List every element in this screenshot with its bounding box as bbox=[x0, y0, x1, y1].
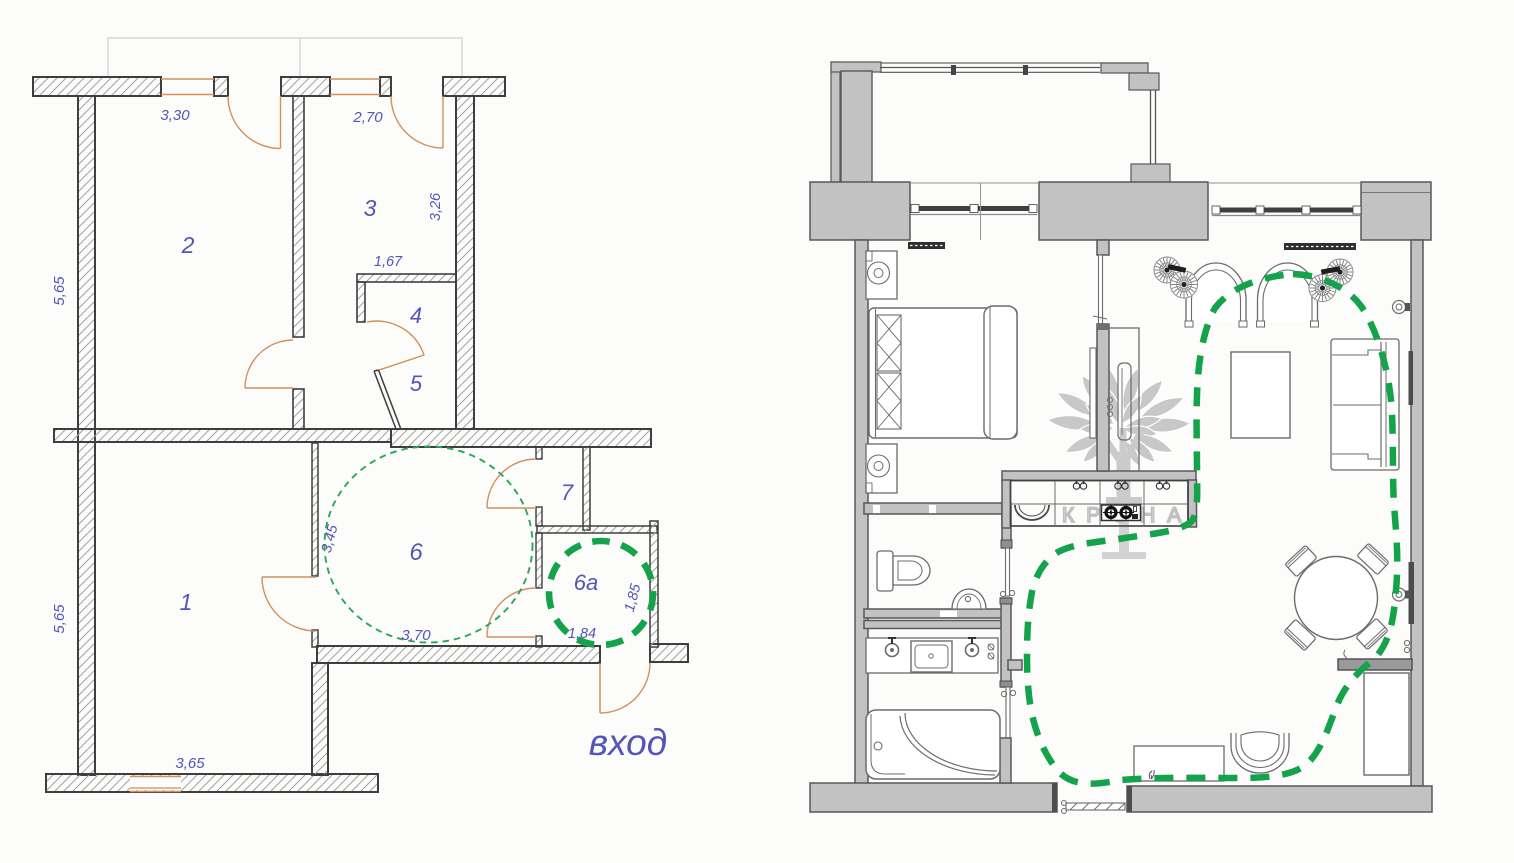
svg-text:3,30: 3,30 bbox=[160, 107, 190, 124]
svg-text:1,67: 1,67 bbox=[374, 254, 403, 270]
svg-text:6: 6 bbox=[409, 539, 423, 566]
svg-text:5: 5 bbox=[410, 371, 423, 396]
svg-text:2: 2 bbox=[181, 232, 195, 258]
svg-text:5,65: 5,65 bbox=[51, 276, 68, 306]
svg-text:3,70: 3,70 bbox=[401, 627, 431, 644]
svg-text:3,26: 3,26 bbox=[428, 192, 444, 221]
svg-text:5,65: 5,65 bbox=[51, 604, 68, 634]
svg-text:1,84: 1,84 bbox=[568, 626, 596, 642]
svg-text:7: 7 bbox=[561, 480, 574, 505]
svg-text:2,70: 2,70 bbox=[352, 109, 383, 126]
svg-text:3,65: 3,65 bbox=[175, 755, 205, 772]
svg-text:6a: 6a bbox=[574, 570, 598, 595]
svg-text:1: 1 bbox=[180, 589, 193, 615]
svg-text:4: 4 bbox=[410, 303, 422, 328]
svg-text:вход: вход bbox=[589, 722, 667, 763]
svg-text:3: 3 bbox=[364, 195, 377, 221]
